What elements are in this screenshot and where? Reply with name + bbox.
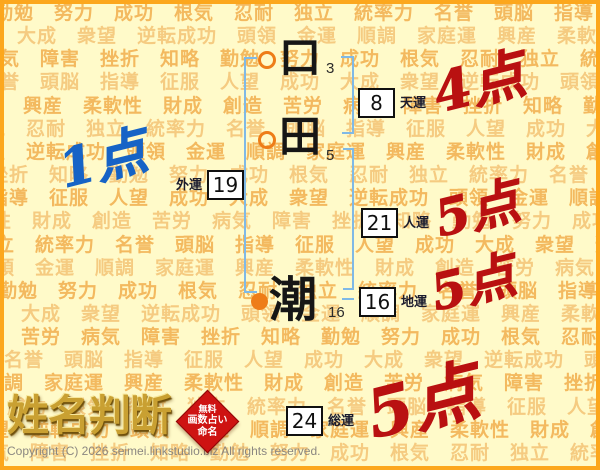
gaiun-bracket-tick-top [246, 57, 257, 59]
site-logo: 姓名判断 [7, 393, 171, 439]
fortune-result-canvas: 勤勉 努力 成功 根気 忍耐 独立 統率力 名誉 頭脳 指導 征服 人望 成功 … [0, 0, 600, 470]
watermark-row: 忍耐 独立 統率力 名誉 頭脳 指導 征服 人望 成功 大成 衆望 逆転成功 頭… [0, 234, 600, 257]
surname-marker-icon [258, 131, 276, 149]
watermark-row: 統率力 名誉 頭脳 指導 征服 人望 成功 大成 衆望 逆転成功 頭領 金運 順… [0, 349, 600, 372]
soun-label: 総運 [328, 415, 354, 428]
seal-line-3: 命名 [198, 427, 218, 439]
chiun-group: 16 地運 [359, 287, 427, 317]
jinun-bracket-tick-top [343, 148, 352, 150]
tenun-bracket-tick-bottom [342, 132, 352, 134]
soun-group: 24 総運 [286, 406, 354, 436]
seal-text: 無料 画数占い 命名 [186, 400, 229, 443]
name-char-3: 潮 [269, 277, 317, 325]
jinun-group: 21 人運 [361, 208, 429, 238]
name-char-1-strokes: 3 [326, 61, 334, 76]
gaiun-label: 外運 [176, 179, 202, 192]
name-char-3-strokes: 16 [328, 305, 345, 320]
chiun-label: 地運 [401, 296, 427, 309]
soun-value-box: 24 [286, 406, 323, 436]
name-char-2-strokes: 5 [326, 148, 334, 163]
chiun-value-box: 16 [359, 287, 396, 317]
tenun-group: 8 天運 [358, 88, 426, 118]
name-char-1: 口 [279, 38, 321, 80]
gaiun-bracket-vertical [244, 57, 246, 293]
tenun-bracket-vertical [352, 56, 354, 134]
jinun-bracket-vertical [352, 148, 354, 290]
gaiun-group: 外運 19 [176, 170, 244, 200]
tenun-bracket-tick-top [341, 56, 352, 58]
watermark-row: 勤勉 努力 成功 根気 忍耐 独立 統率力 名誉 頭脳 指導 征服 人望 成功 … [0, 2, 600, 25]
tenun-label: 天運 [400, 97, 426, 110]
name-char-2: 田 [279, 117, 321, 159]
givenname-marker-icon [251, 293, 268, 310]
jinun-label: 人運 [403, 217, 429, 230]
chiun-tick [342, 298, 354, 300]
seal-line-2: 画数占い [188, 415, 228, 427]
jinun-bracket-tick-bottom [343, 288, 352, 290]
jinun-value-box: 21 [361, 208, 398, 238]
tenun-value-box: 8 [358, 88, 395, 118]
gaiun-value-box: 19 [207, 170, 244, 200]
watermark-row: 創造 苦労 病気 障害 挫折 知略 勤勉 努力 成功 根気 忍耐 独立 統率力 … [0, 326, 600, 349]
copyright-text: Copyright (C) 2026 seimei.linkstudio.biz… [7, 444, 320, 458]
surname-marker-icon [258, 51, 276, 69]
seal-line-1: 無料 [198, 405, 216, 415]
